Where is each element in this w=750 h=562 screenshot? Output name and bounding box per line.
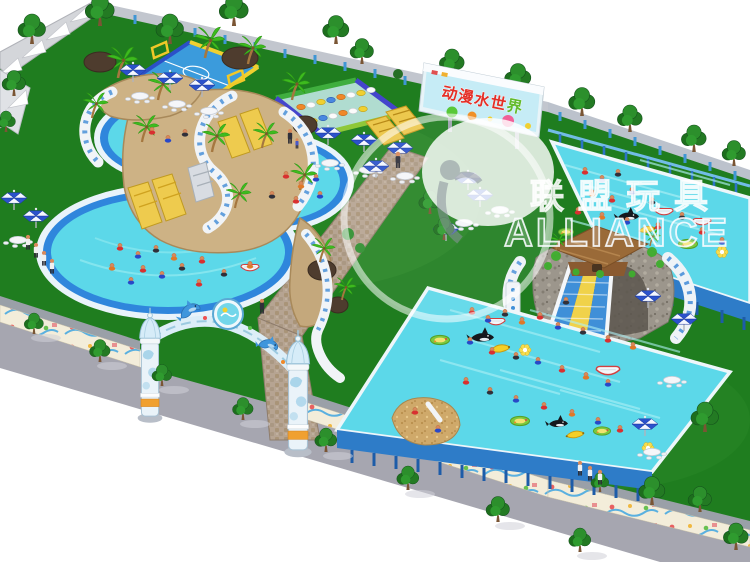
water-park-render: 动漫水世界 — [0, 0, 750, 562]
park-scene-canvas: 动漫水世界 — [0, 0, 750, 562]
watermark-text-en: ALLIANCE — [504, 211, 730, 255]
bush — [393, 69, 403, 79]
arch-emblem — [213, 299, 243, 329]
